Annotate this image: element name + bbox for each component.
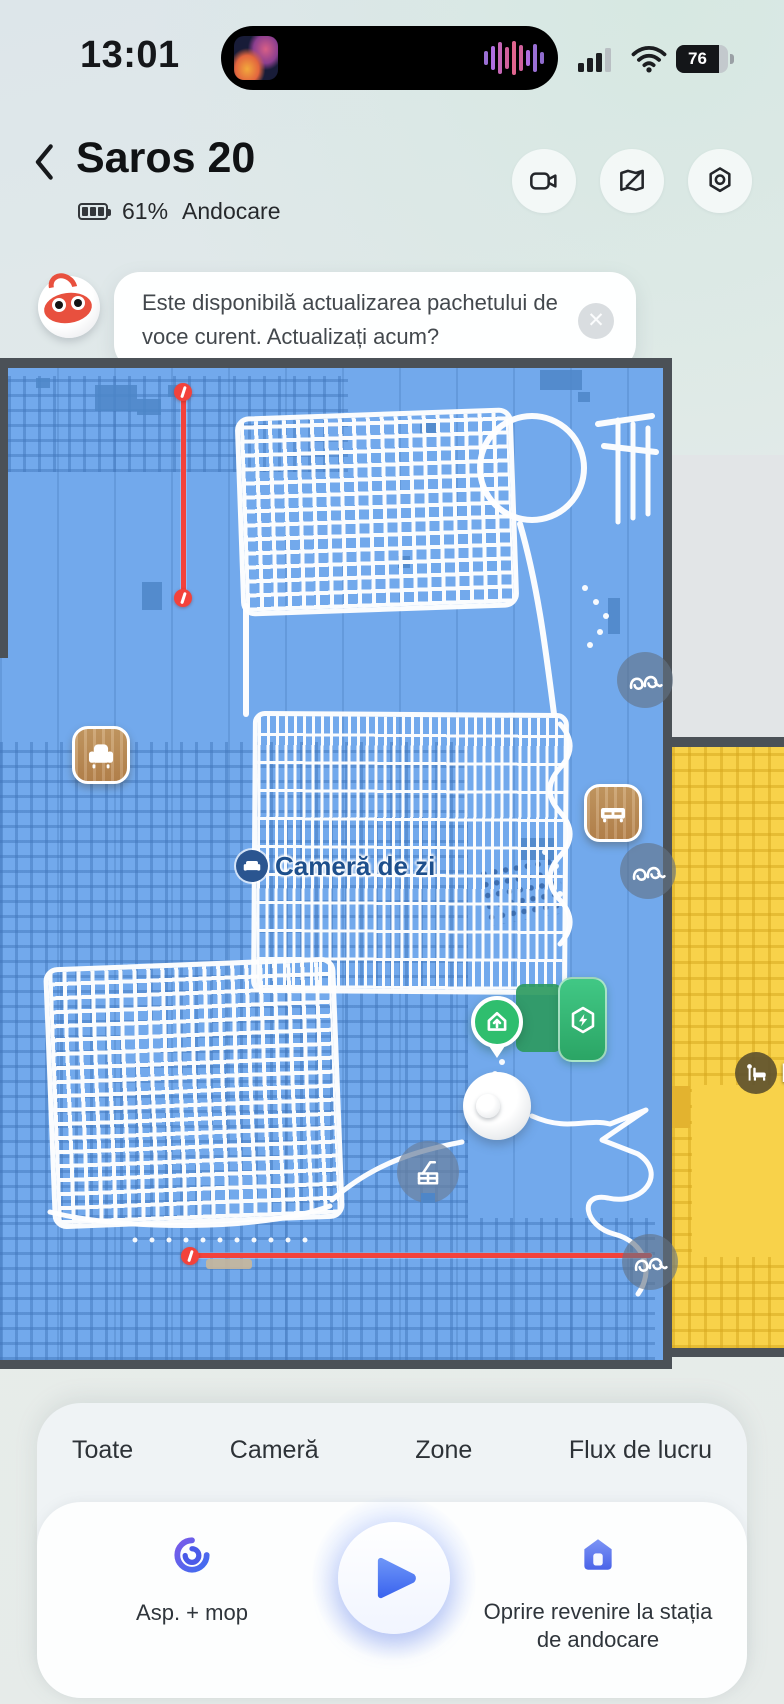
house-arrow-up-icon	[482, 1007, 512, 1037]
map-obstacle-pixels	[36, 378, 50, 388]
chair-obstacle-icon[interactable]	[397, 1141, 459, 1203]
play-button[interactable]	[338, 1522, 450, 1634]
mode-tabs: Toate Cameră Zone Flux de lucru	[72, 1436, 712, 1465]
page-title: Saros 20	[76, 134, 255, 183]
tab-toate[interactable]: Toate	[72, 1436, 133, 1465]
status-time: 13:01	[80, 34, 180, 77]
dock-pin[interactable]	[471, 996, 523, 1048]
robot-vacuum[interactable]	[463, 1072, 531, 1140]
clean-path-area	[43, 956, 345, 1229]
bedroom-floor-patch	[672, 1086, 690, 1128]
map-obstacle-pixels	[137, 399, 161, 415]
virtual-wall-handle[interactable]	[181, 1247, 199, 1265]
settings-nut-icon	[704, 165, 736, 197]
armchair-furniture-icon[interactable]	[72, 726, 130, 784]
tab-camera[interactable]: Cameră	[230, 1436, 319, 1465]
map-obstacle-pixels	[608, 598, 620, 634]
settings-button[interactable]	[688, 149, 752, 213]
dock-station-shape	[516, 984, 562, 1052]
virtual-wall-vertical[interactable]	[181, 392, 186, 598]
map-edit-icon	[616, 165, 648, 197]
dock-house-icon	[577, 1534, 619, 1576]
dynamic-island[interactable]	[221, 26, 558, 90]
device-status-row: 61% Andocare	[78, 198, 281, 225]
map-wall	[0, 358, 8, 658]
cable-obstacle-icon[interactable]	[617, 652, 673, 708]
app-screen: 13:01 76 Saros 20 61% Andocare	[0, 0, 784, 1704]
return-to-dock-label: Oprire revenire la stația de andocare	[478, 1598, 718, 1654]
battery-icon: 76	[676, 45, 738, 73]
map-obstacle-pixels	[142, 582, 162, 610]
map-wall	[672, 737, 784, 747]
virtual-wall-handle[interactable]	[174, 589, 192, 607]
map-wall	[0, 1360, 672, 1369]
play-icon	[375, 1555, 421, 1601]
clean-mode-label: Asp. + mop	[100, 1600, 284, 1626]
audio-waveform-icon	[484, 41, 544, 75]
hexagon-lightning-icon	[567, 1004, 599, 1036]
cabinet-furniture-icon[interactable]	[584, 784, 642, 842]
close-icon[interactable]: ✕	[578, 303, 614, 339]
suction-mop-swirl-icon	[171, 1534, 213, 1576]
return-to-dock-button[interactable]: Oprire revenire la stația de andocare	[478, 1534, 718, 1654]
tab-zone[interactable]: Zone	[415, 1436, 472, 1465]
map-edit-button[interactable]	[600, 149, 664, 213]
video-camera-button[interactable]	[512, 149, 576, 213]
virtual-wall-handle[interactable]	[174, 383, 192, 401]
map-room-bedroom[interactable]	[672, 745, 784, 1348]
carpet-area	[0, 1218, 655, 1360]
map-obstacle-pixels	[578, 392, 590, 402]
device-status-text: Andocare	[182, 198, 280, 225]
banner-message: Este disponibilă actualizarea pachetului…	[142, 286, 562, 354]
device-battery-level: 61%	[122, 198, 168, 225]
bedroom-plain-floor	[692, 1085, 784, 1257]
cellular-signal-icon	[578, 46, 622, 72]
battery-percent: 76	[676, 45, 719, 73]
wifi-icon	[630, 45, 668, 78]
back-button[interactable]	[28, 140, 62, 184]
cable-obstacle-icon[interactable]	[620, 843, 676, 899]
chevron-left-icon	[38, 146, 51, 177]
map-wall	[672, 1348, 784, 1357]
sofa-icon	[236, 850, 268, 882]
device-battery-icon	[78, 203, 108, 220]
dock-pin-tail	[489, 1046, 505, 1058]
voice-update-banner[interactable]: Este disponibilă actualizarea pachetului…	[114, 272, 636, 370]
dock-station-button[interactable]	[558, 977, 607, 1062]
map-unexplored-area	[672, 455, 784, 737]
robot-mascot-icon	[38, 276, 100, 338]
video-camera-icon	[528, 165, 560, 197]
room-name: Cameră de zi	[275, 851, 435, 882]
tab-flux-de-lucru[interactable]: Flux de lucru	[569, 1436, 712, 1465]
cable-obstacle-icon[interactable]	[622, 1234, 678, 1290]
map-obstacle-pixels	[95, 385, 137, 411]
map-obstacle-pixels	[540, 370, 582, 390]
bed-icon	[743, 1060, 769, 1086]
room-label-bedroom[interactable]	[735, 1052, 777, 1094]
doormat	[206, 1259, 252, 1269]
virtual-wall-horizontal[interactable]	[190, 1253, 652, 1258]
clean-mode-button[interactable]: Asp. + mop	[100, 1534, 284, 1626]
album-art-icon	[234, 36, 278, 80]
clean-path-area	[235, 407, 520, 617]
room-label-living[interactable]: Cameră de zi	[236, 850, 435, 882]
map-wall	[0, 358, 672, 368]
